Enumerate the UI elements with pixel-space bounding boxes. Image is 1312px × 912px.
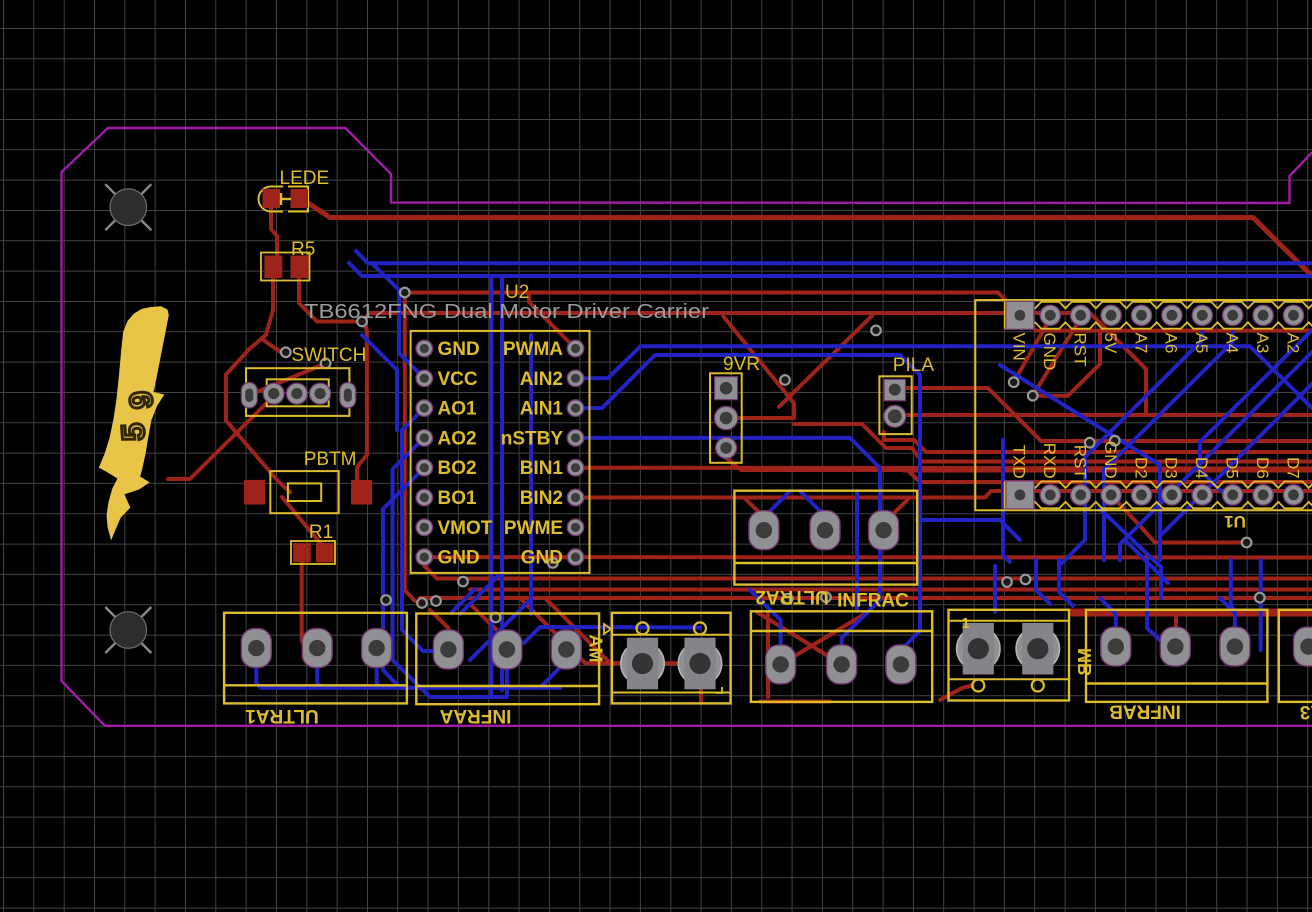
svg-text:5V: 5V [1101,333,1120,354]
svg-text:D3: D3 [1162,457,1181,479]
svg-text:AO1: AO1 [438,399,478,420]
svg-text:9: 9 [122,390,159,410]
svg-text:R1: R1 [309,522,333,543]
svg-text:BO1: BO1 [438,488,478,509]
svg-text:PBTM: PBTM [304,449,357,470]
svg-text:9VR: 9VR [723,354,760,375]
svg-text:SWITCH: SWITCH [291,345,366,366]
svg-text:VCC: VCC [438,369,478,390]
svg-text:A7: A7 [1131,333,1150,354]
svg-text:INFRAC: INFRAC [837,591,909,612]
svg-text:PILA: PILA [893,355,935,376]
svg-text:MB: MB [1075,648,1095,676]
svg-text:BIN2: BIN2 [520,488,563,509]
svg-text:U2: U2 [505,282,529,303]
svg-text:A5: A5 [1192,333,1211,354]
svg-text:RXD: RXD [1040,443,1059,479]
svg-text:RST: RST [1071,445,1090,479]
svg-text:A6: A6 [1162,333,1181,354]
svg-text:AO2: AO2 [438,428,477,449]
svg-text:BIN1: BIN1 [520,458,564,479]
svg-text:D6: D6 [1253,457,1272,479]
svg-text:PWMA: PWMA [503,339,563,360]
svg-text:AIN1: AIN1 [520,399,564,420]
svg-text:U1: U1 [1224,512,1246,531]
svg-text:D2: D2 [1131,457,1150,479]
svg-text:1: 1 [962,615,970,632]
svg-text:GND: GND [521,548,563,569]
svg-text:INFRAA: INFRAA [439,705,511,726]
svg-text:PWME: PWME [504,518,563,539]
svg-text:AIN2: AIN2 [520,369,563,390]
svg-text:GND: GND [1101,441,1120,479]
svg-text:ULTRA1: ULTRA1 [245,705,319,726]
svg-text:GND: GND [438,339,480,360]
svg-text:VMOT: VMOT [438,518,493,539]
svg-text:RST: RST [1071,333,1090,367]
svg-text:MA: MA [586,635,606,663]
svg-text:VIN: VIN [1010,333,1029,361]
svg-text:INFRAB: INFRAB [1109,701,1181,722]
svg-text:A3: A3 [1300,701,1312,722]
svg-text:D4: D4 [1192,457,1211,479]
svg-text:ULTRA2: ULTRA2 [755,586,829,607]
svg-text:D7: D7 [1283,457,1302,479]
svg-text:A3: A3 [1253,333,1272,354]
svg-text:TB6612FNG Dual Motor Driver Ca: TB6612FNG Dual Motor Driver Carrier [304,301,709,323]
svg-text:A2: A2 [1283,333,1302,354]
svg-text:BO2: BO2 [438,458,477,479]
svg-text:GND: GND [1040,333,1059,371]
svg-text:GND: GND [438,548,480,569]
svg-text:nSTBY: nSTBY [501,428,564,449]
svg-text:5: 5 [114,422,151,442]
svg-text:TXD: TXD [1010,445,1029,479]
svg-text:A4: A4 [1223,333,1242,354]
svg-text:D5: D5 [1223,457,1242,479]
